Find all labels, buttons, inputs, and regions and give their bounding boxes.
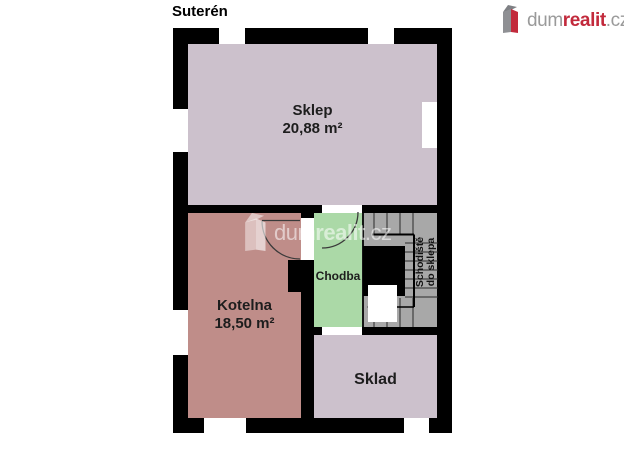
- logo-realit: realit: [563, 10, 606, 31]
- brand-cube-icon: [502, 5, 520, 33]
- floorplan-page: Suterén dumrealit.cz Sklep 20,88 m² Kote…: [0, 0, 624, 468]
- room-sklad-label: Sklad: [314, 335, 437, 389]
- room-staircase: Schodiště do sklepa: [362, 213, 437, 327]
- floorplan: Sklep 20,88 m² Kotelna 18,50 m² Chodba: [173, 28, 452, 433]
- room-sklep-label: Sklep 20,88 m²: [188, 44, 437, 138]
- logo-cz: .cz: [606, 10, 624, 31]
- page-title: Suterén: [172, 3, 228, 20]
- wall-pillar: [288, 260, 314, 292]
- logo-dum: dum: [527, 10, 563, 31]
- door-kotelna-chodba: [301, 218, 314, 260]
- room-sklep-area: 20,88 m²: [188, 120, 437, 138]
- window-bottom-left: [204, 418, 246, 433]
- room-kotelna: Kotelna 18,50 m²: [188, 213, 301, 418]
- room-sklep: Sklep 20,88 m²: [188, 44, 437, 205]
- room-chodba-label: Chodba: [314, 213, 362, 283]
- window-top-right: [368, 28, 394, 44]
- window-left-lower: [173, 310, 188, 355]
- room-kotelna-area: 18,50 m²: [188, 315, 301, 333]
- staircase-label-line2: do sklepa: [426, 237, 437, 287]
- brand-logo: dumrealit.cz: [502, 5, 624, 33]
- room-staircase-label: Schodiště do sklepa: [415, 237, 437, 287]
- door-chodba-sklad: [322, 327, 362, 335]
- stair-void-opening: [368, 285, 397, 322]
- room-kotelna-label: Kotelna 18,50 m²: [188, 213, 301, 333]
- room-chodba: Chodba: [314, 213, 362, 327]
- room-sklep-name: Sklep: [188, 102, 437, 120]
- stair-void: [363, 246, 405, 296]
- brand-logo-text: dumrealit.cz: [527, 11, 624, 30]
- window-bottom-right: [404, 418, 429, 433]
- door-sklep-chodba: [322, 205, 362, 213]
- window-left-upper: [173, 109, 188, 152]
- window-right: [422, 102, 437, 148]
- room-sklad: Sklad: [314, 335, 437, 418]
- room-kotelna-name: Kotelna: [188, 297, 301, 315]
- window-top-left: [219, 28, 245, 44]
